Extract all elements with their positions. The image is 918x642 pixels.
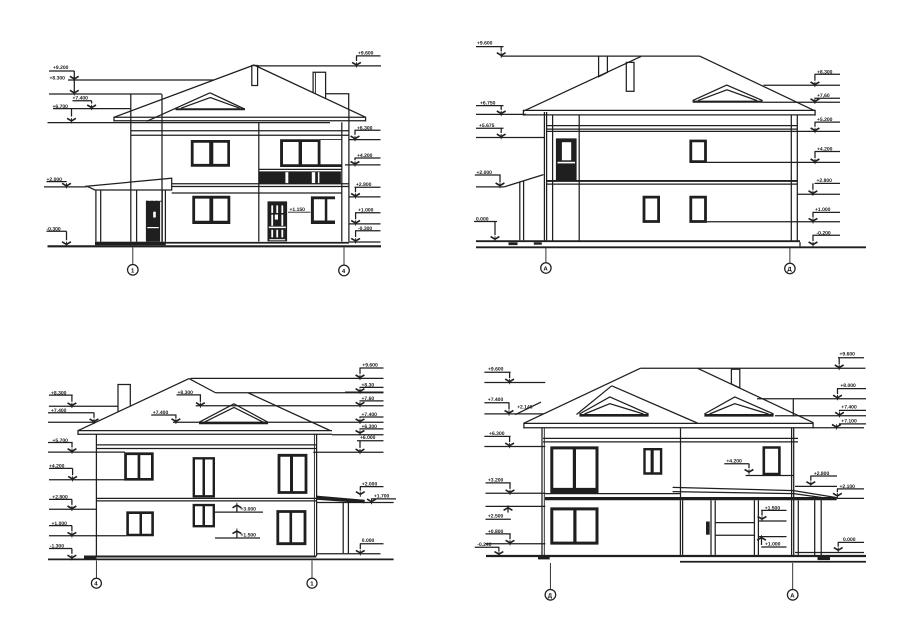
svg-text:А: А <box>790 592 795 599</box>
svg-text:А: А <box>543 266 548 273</box>
svg-text:+6.700: +6.700 <box>53 104 69 110</box>
svg-text:0.000: 0.000 <box>362 538 375 544</box>
svg-text:+9.600: +9.600 <box>477 41 493 47</box>
svg-text:+3.000: +3.000 <box>241 506 257 512</box>
svg-text:+9.200: +9.200 <box>53 65 69 71</box>
svg-text:+8.000: +8.000 <box>840 383 856 389</box>
svg-text:+8.300: +8.300 <box>50 76 66 82</box>
svg-text:+1.500: +1.500 <box>241 532 257 538</box>
svg-text:+9.600: +9.600 <box>488 366 504 372</box>
svg-text:Д: Д <box>548 592 553 599</box>
svg-text:+9.600: +9.600 <box>840 351 856 357</box>
svg-text:Д: Д <box>787 266 792 273</box>
